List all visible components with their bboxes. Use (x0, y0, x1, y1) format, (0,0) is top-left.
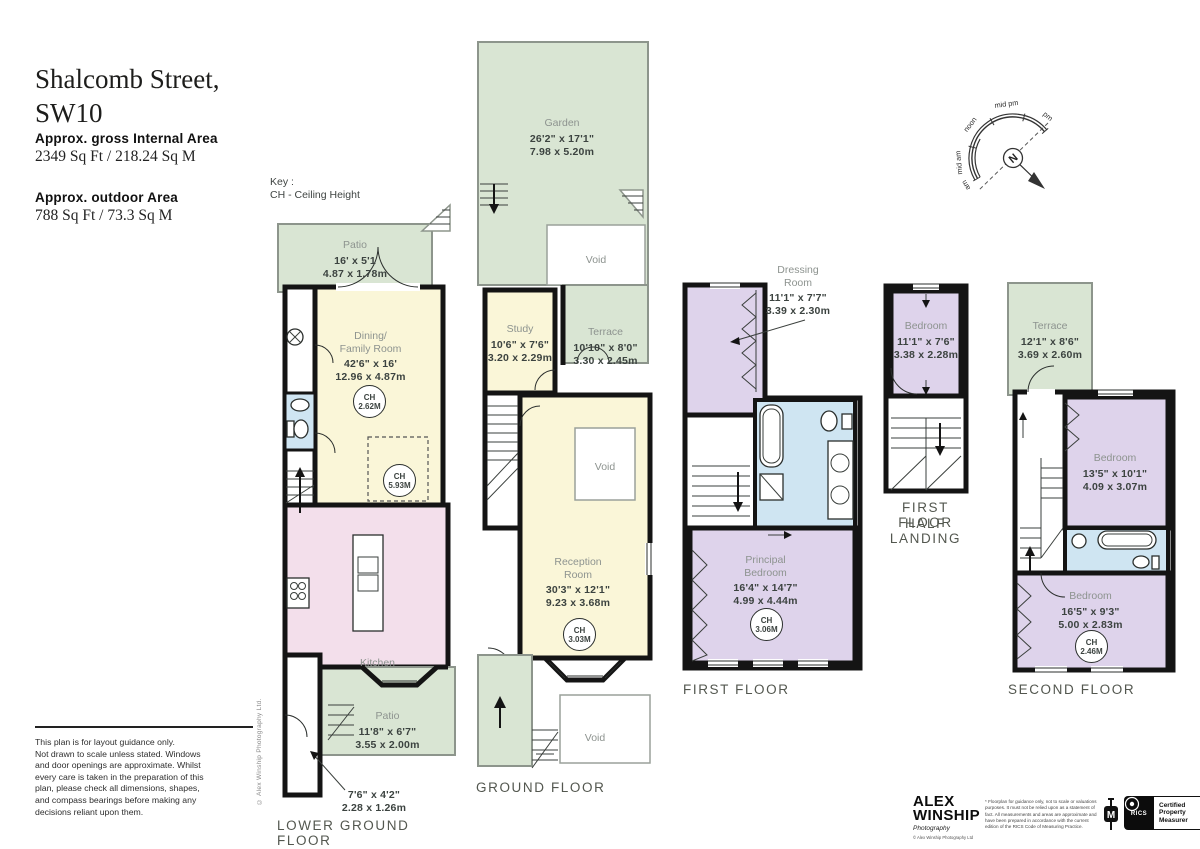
outdoor-area-label: Approx. outdoor Area (35, 190, 178, 205)
ceiling-height-badge-bedroom-bottom: CH 2.46M (1075, 630, 1108, 663)
room-label-reception: Reception Room 30'3" x 12'1" 9.23 x 3.68… (515, 556, 641, 610)
rics-logo: RICS (1124, 796, 1154, 830)
rics-certification-text: Certified Property Measurer (1154, 796, 1200, 830)
room-label-bedroom-top: Bedroom 13'5" x 10'1" 4.09 x 3.07m (1065, 452, 1165, 494)
copyright-vertical: © Alex Winship Photography Ltd. (256, 693, 263, 805)
void-lower (560, 695, 650, 763)
void-label-upper: Void (566, 254, 626, 266)
ceiling-height-badge-void: CH 5.93M (383, 464, 416, 497)
half-landing-graphic (878, 278, 973, 538)
floor-label-second: SECOND FLOOR (1008, 682, 1135, 697)
photographer-logo: ALEX WINSHIP Photography © Alex Winship … (913, 795, 980, 840)
first-floor-plan: Dressing Room 11'1" x 7'7" 3.39 x 2.30m … (680, 258, 870, 703)
toilet-icon (294, 420, 308, 438)
sink-icon (291, 399, 309, 411)
half-landing-plan: Bedroom 11'1" x 7'6" 3.38 x 2.28m FIRST … (878, 278, 973, 538)
room-label-second-terrace: Terrace 12'1" x 8'6" 3.69 x 2.60m (1011, 320, 1089, 362)
floor-label-half-landing-2: HALF LANDING (878, 516, 973, 546)
void-label-lower: Void (565, 732, 625, 744)
floor-label-ground: GROUND FLOOR (476, 780, 605, 795)
floor-label-first: FIRST FLOOR (683, 682, 790, 697)
entry-path-area (478, 655, 532, 766)
store-dimension-callout: 7'6" x 4'2" 2.28 x 1.26m (328, 789, 420, 815)
internal-area-value: 2349 Sq Ft / 218.24 Sq M (35, 148, 196, 166)
logo-line-2: WINSHIP (913, 809, 980, 823)
toilet-icon (1133, 556, 1149, 568)
rics-emblem-icon (1124, 796, 1140, 812)
key-line1: Key : (270, 176, 360, 189)
internal-area-label: Approx. gross Internal Area (35, 131, 218, 146)
room-label-study: Study 10'6" x 7'6" 3.20 x 2.29m (487, 323, 553, 365)
store-room (285, 655, 320, 795)
compass-label-pm: pm (1041, 110, 1055, 123)
room-label-dining: Dining/ Family Room 42'6" x 16' 12.96 x … (308, 330, 433, 384)
compass-label-mid-am: mid am (953, 150, 964, 175)
outdoor-area-value: 788 Sq Ft / 73.3 Sq M (35, 207, 172, 225)
floorplan-page: Shalcomb Street, SW10 Approx. gross Inte… (0, 0, 1200, 849)
basin-icon (1072, 534, 1086, 548)
disclaimer-text: This plan is for layout guidance only. N… (35, 726, 253, 818)
floor-label-lower-ground: LOWER GROUND FLOOR (277, 818, 465, 848)
logo-copyright: © Alex Winship Photography Ltd (913, 835, 980, 840)
compass-graphic: N am mid am noon mid pm pm (945, 58, 1080, 193)
rics-badge: RICS Certified Property Measurer (1124, 796, 1200, 830)
tape-measure-letter: M (1107, 810, 1115, 821)
room-label-garden: Garden 26'2" x 17'1" 7.98 x 5.20m (497, 117, 627, 159)
room-label-dressing: Dressing Room 11'1" x 7'7" 3.39 x 2.30m (748, 264, 848, 318)
room-label-patio-top: Patio 16' x 5'1 4.87 x 1.78m (290, 239, 420, 281)
compass-label-am: am (959, 179, 972, 192)
ceiling-height-badge-reception: CH 3.03M (563, 618, 596, 651)
compass-label-mid-pm: mid pm (994, 98, 1019, 110)
room-label-kitchen: Kitchen (315, 657, 440, 673)
ceiling-height-badge-dining: CH 2.62M (353, 385, 386, 418)
reception-bay-wall (520, 658, 650, 680)
second-floor-plan: Terrace 12'1" x 8'6" 3.69 x 2.60m Bedroo… (1003, 278, 1183, 703)
ceiling-height-badge-principal: CH 3.06M (750, 608, 783, 641)
room-label-half-landing-bedroom: Bedroom 11'1" x 7'6" 3.38 x 2.28m (888, 320, 964, 362)
room-label-patio-bottom: Patio 11'8" x 6'7" 3.55 x 2.00m (325, 710, 450, 752)
compass-label-noon: noon (961, 115, 978, 133)
room-label-principal-bedroom: Principal Bedroom 16'4" x 14'7" 4.99 x 4… (703, 554, 828, 608)
void-label-middle: Void (575, 461, 635, 473)
toilet-icon (821, 411, 837, 431)
ground-floor-plan: Garden 26'2" x 17'1" 7.98 x 5.20m Void S… (470, 38, 660, 788)
fine-print: * Floorplan for guidance only, not to sc… (985, 799, 1097, 830)
lower-ground-floor-plan: Patio 16' x 5'1 4.87 x 1.78m Dining/ Fam… (270, 195, 465, 840)
hob-icon (287, 578, 309, 608)
room-label-terrace: Terrace 10'10" x 8'0" 3.30 x 2.45m (565, 326, 646, 368)
tape-measure-icon: M (1100, 796, 1122, 832)
compass: N am mid am noon mid pm pm (945, 58, 1080, 193)
page-title: Shalcomb Street, SW10 (35, 62, 219, 130)
logo-subtitle: Photography (913, 825, 980, 832)
room-label-bedroom-bottom: Bedroom 16'5" x 9'3" 5.00 x 2.83m (1028, 590, 1153, 632)
